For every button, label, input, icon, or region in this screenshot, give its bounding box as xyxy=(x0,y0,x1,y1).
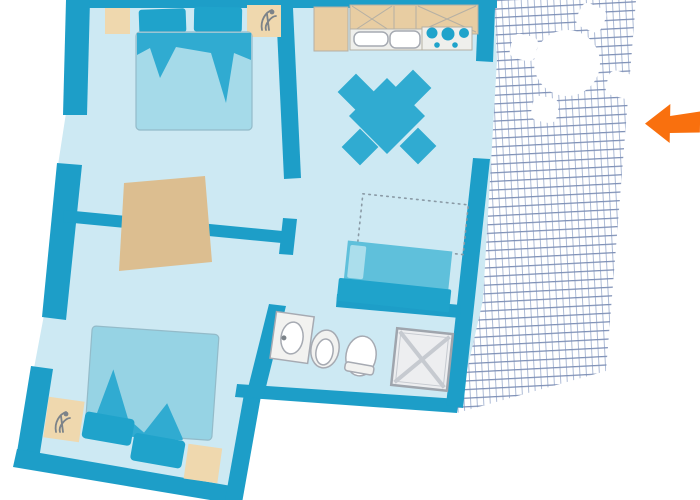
pillow xyxy=(139,8,187,34)
direction-arrow xyxy=(645,104,700,144)
kitchen xyxy=(314,5,478,51)
hall-rug xyxy=(119,176,212,271)
floor-plan-image xyxy=(0,0,700,500)
nightstand-lamp xyxy=(43,397,84,443)
wall-left-upper xyxy=(63,0,90,115)
floor-plan-svg xyxy=(0,0,700,500)
shower xyxy=(391,328,453,391)
sink-basin xyxy=(354,32,388,46)
nightstand-right xyxy=(247,5,281,37)
kitchen-fridge-counter xyxy=(314,7,348,51)
sink-basin xyxy=(390,31,420,48)
nightstand xyxy=(184,444,223,483)
washbasin xyxy=(270,312,314,364)
wall-right-upper xyxy=(476,8,495,62)
pillow xyxy=(194,7,242,33)
nightstand-left xyxy=(105,8,130,34)
terrace-round-table xyxy=(534,30,600,96)
dining-area xyxy=(338,70,437,166)
